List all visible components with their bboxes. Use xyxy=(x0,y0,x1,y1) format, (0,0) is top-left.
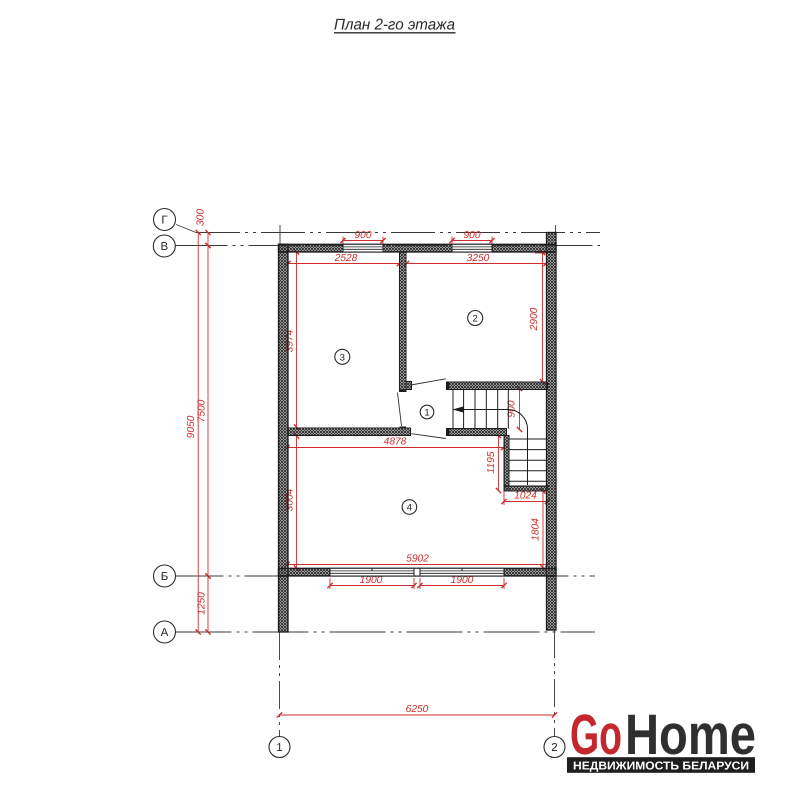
svg-text:4878: 4878 xyxy=(384,437,407,448)
svg-text:4: 4 xyxy=(407,503,412,514)
svg-text:1195: 1195 xyxy=(486,451,497,473)
svg-text:900: 900 xyxy=(355,230,372,241)
svg-text:Б: Б xyxy=(161,571,169,583)
svg-text:900: 900 xyxy=(464,230,481,241)
svg-text:2528: 2528 xyxy=(334,253,358,264)
svg-text:1: 1 xyxy=(276,742,282,754)
svg-text:300: 300 xyxy=(196,209,207,226)
svg-text:Г: Г xyxy=(161,215,168,227)
svg-text:1: 1 xyxy=(424,408,429,419)
svg-text:2: 2 xyxy=(473,314,478,325)
svg-text:9050: 9050 xyxy=(186,415,197,438)
svg-text:А: А xyxy=(161,627,169,639)
svg-text:1024: 1024 xyxy=(514,491,537,502)
svg-text:3250: 3250 xyxy=(467,253,490,264)
svg-text:1900: 1900 xyxy=(360,575,383,586)
svg-text:5902: 5902 xyxy=(406,554,429,565)
svg-text:1804: 1804 xyxy=(531,518,542,541)
svg-text:План 2-го этажа: План 2-го этажа xyxy=(334,17,455,34)
svg-text:3: 3 xyxy=(340,352,345,363)
svg-text:1900: 1900 xyxy=(451,575,474,586)
svg-text:6250: 6250 xyxy=(406,704,429,715)
svg-text:2: 2 xyxy=(551,742,557,754)
svg-text:2900: 2900 xyxy=(529,307,540,331)
svg-text:НЕДВИЖИМОСТЬ БЕЛАРУСИ: НЕДВИЖИМОСТЬ БЕЛАРУСИ xyxy=(573,761,749,773)
svg-text:В: В xyxy=(160,241,168,253)
